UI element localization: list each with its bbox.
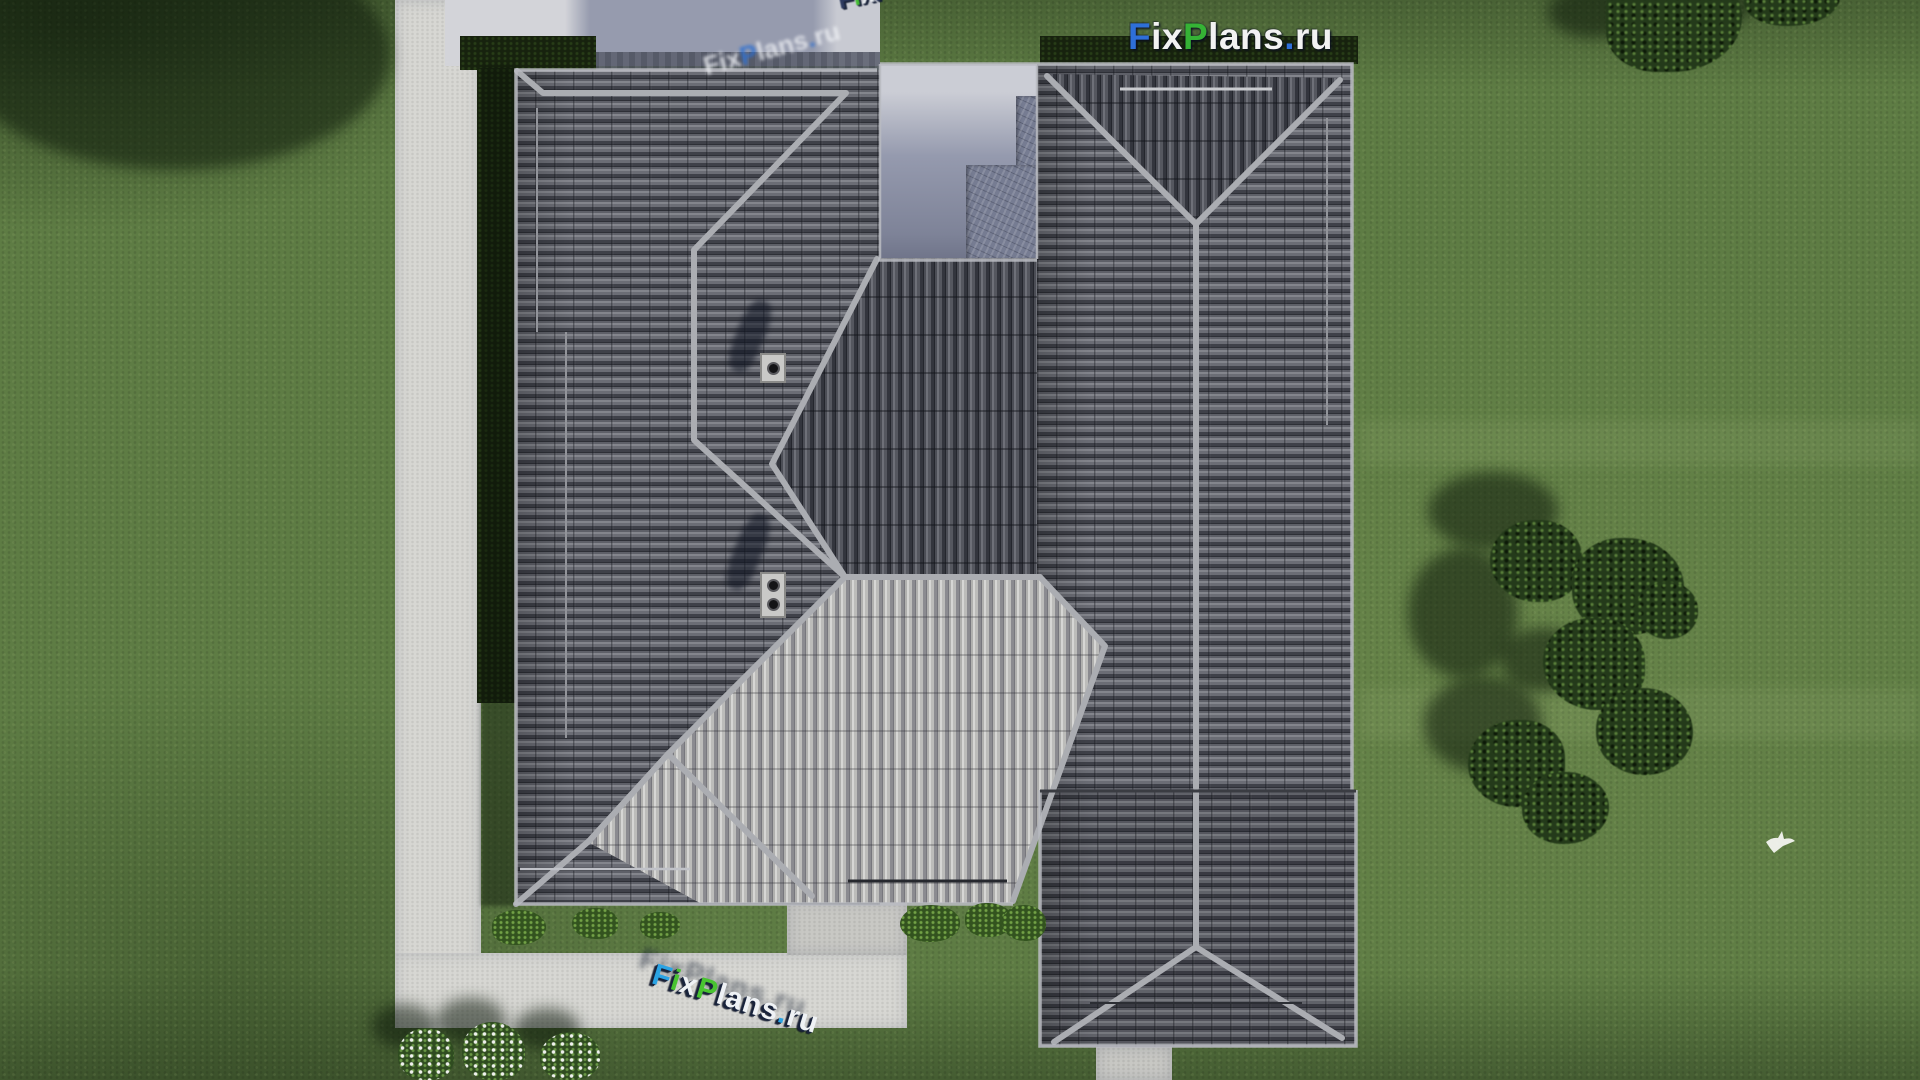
bush	[572, 908, 618, 939]
fixplans-logo-text: FixPlans.ru	[1128, 16, 1333, 58]
house-apron-walk	[787, 900, 907, 955]
roof-chimney-single	[760, 353, 786, 383]
left-walkway	[395, 0, 481, 1028]
tree	[1596, 688, 1693, 775]
house-cast-shadow-left	[481, 66, 516, 906]
chimney-flue	[767, 579, 780, 592]
roof-garage-wing	[1040, 790, 1356, 1047]
bush	[900, 905, 960, 942]
fixplans-top-edge-watermark-clip: FixPlans.ru	[838, 0, 990, 36]
hedge-top-left	[460, 36, 596, 70]
aerial-render-scene: FixPlans.ru FixPlans.ru FixPlans.ru FixP…	[0, 0, 1920, 1080]
flower-bush	[398, 1028, 454, 1080]
roof-chimney-double	[760, 572, 786, 618]
bush	[1002, 905, 1046, 941]
mown-grass-band	[1360, 420, 1920, 466]
flower-bush	[462, 1022, 525, 1080]
fixplans-top-edge-watermark: FixPlans.ru	[838, 0, 990, 16]
tree	[1490, 520, 1582, 602]
garage-walk-stub	[1096, 1047, 1172, 1080]
chimney-flue	[767, 362, 780, 375]
tree	[1522, 772, 1609, 844]
flower-bush	[540, 1032, 600, 1080]
chimney-flue	[767, 598, 780, 611]
tree	[1636, 582, 1698, 639]
stone-chimney-wall	[966, 165, 1037, 260]
